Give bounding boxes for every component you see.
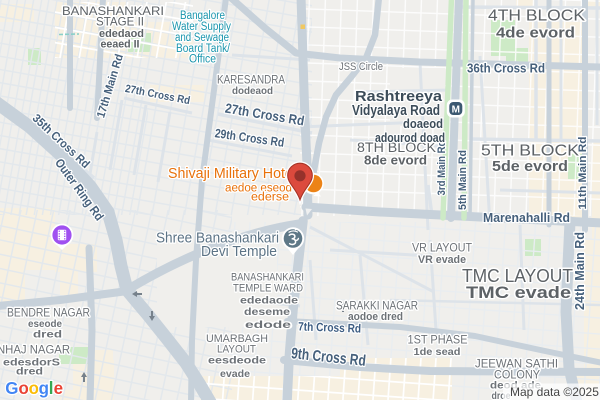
svg-text:G: G — [5, 378, 18, 398]
svg-text:24th Main Rd: 24th Main Rd — [573, 232, 587, 310]
svg-text:TMC evade: TMC evade — [466, 284, 571, 302]
svg-text:11th Main Rd: 11th Main Rd — [577, 137, 589, 210]
svg-text:5th Main Rd: 5th Main Rd — [457, 150, 469, 210]
svg-text:evade: evade — [220, 368, 250, 380]
svg-text:STAGE II: STAGE II — [96, 15, 144, 29]
svg-text:M: M — [452, 104, 460, 115]
svg-text:o: o — [29, 378, 39, 398]
svg-text:8de evord: 8de evord — [364, 154, 427, 168]
svg-text:5TH BLOCK: 5TH BLOCK — [481, 143, 579, 160]
svg-text:JSS Circle: JSS Circle — [339, 61, 383, 73]
svg-text:e: e — [54, 378, 63, 398]
svg-text:1ST PHASE: 1ST PHASE — [408, 335, 468, 347]
svg-text:4TH BLOCK: 4TH BLOCK — [488, 8, 585, 25]
svg-text:Map data ©2025: Map data ©2025 — [510, 385, 599, 399]
svg-text:doaeod: doaeod — [403, 116, 443, 131]
svg-text:adourod doad: adourod doad — [375, 130, 445, 145]
svg-text:ederse: ederse — [251, 192, 289, 204]
svg-text:TEMPLE WARD: TEMPLE WARD — [233, 283, 303, 295]
svg-text:o: o — [18, 378, 28, 398]
svg-text:dodeaod: dodeaod — [232, 85, 273, 97]
svg-text:Office: Office — [189, 54, 216, 66]
svg-text:3rd Main Rd: 3rd Main Rd — [436, 141, 448, 196]
svg-text:VR LAYOUT: VR LAYOUT — [412, 243, 472, 255]
svg-text:ededaode: ededaode — [240, 295, 298, 307]
svg-text:1de sead: 1de sead — [414, 346, 461, 358]
svg-text:dred: dred — [16, 366, 43, 378]
svg-text:edode: edode — [245, 319, 291, 331]
svg-text:4de evord: 4de evord — [496, 25, 575, 42]
svg-text:g: g — [39, 378, 49, 398]
svg-text:7th Cross Rd: 7th Cross Rd — [298, 319, 361, 335]
svg-text:TMC LAYOUT: TMC LAYOUT — [462, 266, 573, 286]
svg-text:deseme: deseme — [244, 306, 290, 318]
svg-text:VR evade: VR evade — [418, 254, 466, 266]
svg-text:NHAJ NAGAR: NHAJ NAGAR — [0, 345, 70, 357]
svg-text:Marenahalli Rd: Marenahalli Rd — [483, 210, 570, 225]
svg-text:5de evord: 5de evord — [492, 158, 568, 175]
svg-text:eeaed II: eeaed II — [101, 39, 140, 51]
svg-text:36th Cross Rd: 36th Cross Rd — [467, 62, 545, 76]
svg-text:eesdeode: eesdeode — [208, 355, 266, 367]
svg-text:dred: dred — [33, 329, 62, 341]
svg-text:Shivaji Military Hotel: Shivaji Military Hotel — [168, 166, 296, 182]
svg-text:Devi Temple: Devi Temple — [201, 243, 277, 260]
